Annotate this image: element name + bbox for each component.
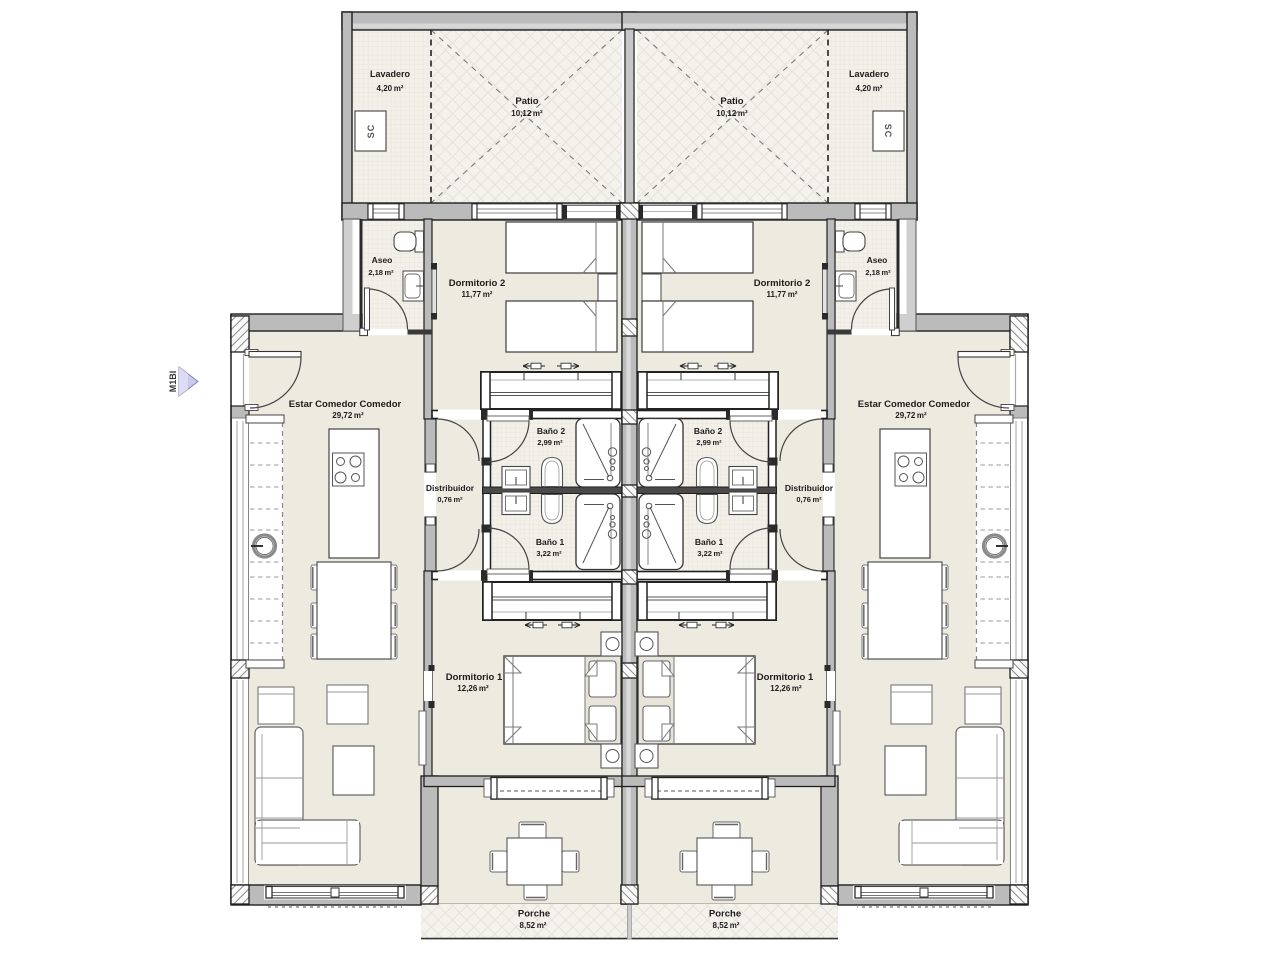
svg-text:10,12 m²: 10,12 m² bbox=[716, 109, 748, 118]
svg-text:2,18 m²: 2,18 m² bbox=[865, 268, 891, 277]
svg-text:29,72 m²: 29,72 m² bbox=[332, 411, 364, 420]
svg-text:M1BI: M1BI bbox=[168, 371, 178, 393]
svg-text:10,12 m²: 10,12 m² bbox=[511, 109, 543, 118]
svg-text:4,20 m²: 4,20 m² bbox=[377, 84, 404, 93]
svg-text:Baño 1: Baño 1 bbox=[536, 537, 565, 547]
svg-text:11,77 m²: 11,77 m² bbox=[767, 290, 798, 299]
svg-text:Porche: Porche bbox=[518, 909, 550, 920]
svg-text:3,22 m²: 3,22 m² bbox=[697, 549, 723, 558]
svg-text:2,99 m²: 2,99 m² bbox=[696, 438, 722, 447]
svg-text:Baño 1: Baño 1 bbox=[695, 537, 724, 547]
svg-text:Lavadero: Lavadero bbox=[370, 69, 411, 79]
svg-text:Distribuidor: Distribuidor bbox=[426, 483, 475, 493]
svg-text:12,26 m²: 12,26 m² bbox=[457, 684, 489, 693]
svg-text:Estar Comedor Comedor: Estar Comedor Comedor bbox=[289, 399, 402, 410]
svg-text:Aseo: Aseo bbox=[867, 255, 888, 265]
svg-text:0,76 m²: 0,76 m² bbox=[437, 495, 463, 504]
svg-text:Distribuidor: Distribuidor bbox=[785, 483, 834, 493]
svg-text:8,52 m²: 8,52 m² bbox=[713, 921, 740, 930]
svg-text:11,77 m²: 11,77 m² bbox=[462, 290, 493, 299]
svg-text:2,99 m²: 2,99 m² bbox=[537, 438, 563, 447]
svg-text:Patio: Patio bbox=[515, 96, 538, 107]
svg-text:Baño 2: Baño 2 bbox=[537, 426, 566, 436]
svg-text:SC: SC bbox=[366, 124, 376, 139]
svg-text:Aseo: Aseo bbox=[372, 255, 393, 265]
svg-text:Dormitorio 1: Dormitorio 1 bbox=[446, 672, 503, 683]
svg-text:Porche: Porche bbox=[709, 909, 741, 920]
svg-text:12,26 m²: 12,26 m² bbox=[770, 684, 802, 693]
svg-text:29,72 m²: 29,72 m² bbox=[895, 411, 927, 420]
svg-text:Lavadero: Lavadero bbox=[849, 69, 890, 79]
svg-text:2,18 m²: 2,18 m² bbox=[368, 268, 394, 277]
svg-text:4,20 m²: 4,20 m² bbox=[856, 84, 883, 93]
svg-text:Patio: Patio bbox=[720, 96, 743, 107]
svg-text:Dormitorio 2: Dormitorio 2 bbox=[449, 278, 505, 289]
svg-text:Baño 2: Baño 2 bbox=[694, 426, 723, 436]
svg-text:Dormitorio 2: Dormitorio 2 bbox=[754, 278, 810, 289]
svg-text:Estar Comedor Comedor: Estar Comedor Comedor bbox=[858, 399, 971, 410]
svg-text:Dormitorio 1: Dormitorio 1 bbox=[757, 672, 814, 683]
svg-text:SC: SC bbox=[883, 124, 893, 139]
svg-text:3,22 m²: 3,22 m² bbox=[536, 549, 562, 558]
svg-text:8,52 m²: 8,52 m² bbox=[520, 921, 547, 930]
svg-text:0,76 m²: 0,76 m² bbox=[796, 495, 822, 504]
